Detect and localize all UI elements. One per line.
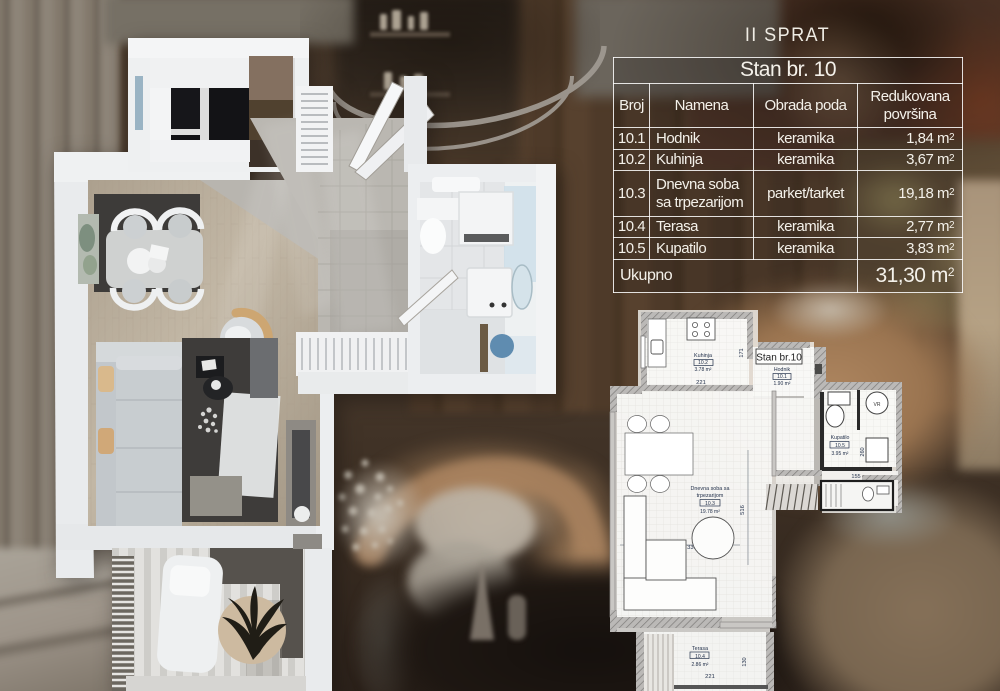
svg-text:Kupatilo: Kupatilo (831, 435, 850, 441)
svg-text:Kuhinja: Kuhinja (694, 353, 712, 359)
svg-text:Dnevna soba sa: Dnevna soba sa (691, 486, 730, 492)
svg-text:516: 516 (740, 505, 746, 515)
svg-text:221: 221 (705, 674, 715, 680)
svg-text:Terasa: Terasa (692, 646, 708, 652)
svg-text:221: 221 (696, 380, 706, 386)
svg-text:10.2: 10.2 (698, 360, 708, 366)
svg-text:VR: VR (874, 402, 881, 408)
svg-text:10.4: 10.4 (695, 654, 705, 660)
svg-text:Stan br.10: Stan br.10 (756, 353, 802, 364)
svg-text:260: 260 (860, 447, 866, 456)
svg-text:155: 155 (851, 474, 860, 480)
svg-text:trpezarijom: trpezarijom (697, 493, 724, 499)
svg-text:1.90 m²: 1.90 m² (774, 381, 791, 387)
svg-text:10.1: 10.1 (777, 374, 787, 380)
svg-text:130: 130 (742, 657, 748, 666)
svg-text:171: 171 (739, 348, 745, 357)
svg-text:3.78 m²: 3.78 m² (695, 367, 712, 373)
svg-text:19.78 m²: 19.78 m² (700, 509, 720, 515)
svg-text:3.95 m²: 3.95 m² (832, 451, 849, 457)
svg-text:Hodnik: Hodnik (774, 367, 791, 373)
svg-text:2.86 m²: 2.86 m² (692, 662, 709, 668)
